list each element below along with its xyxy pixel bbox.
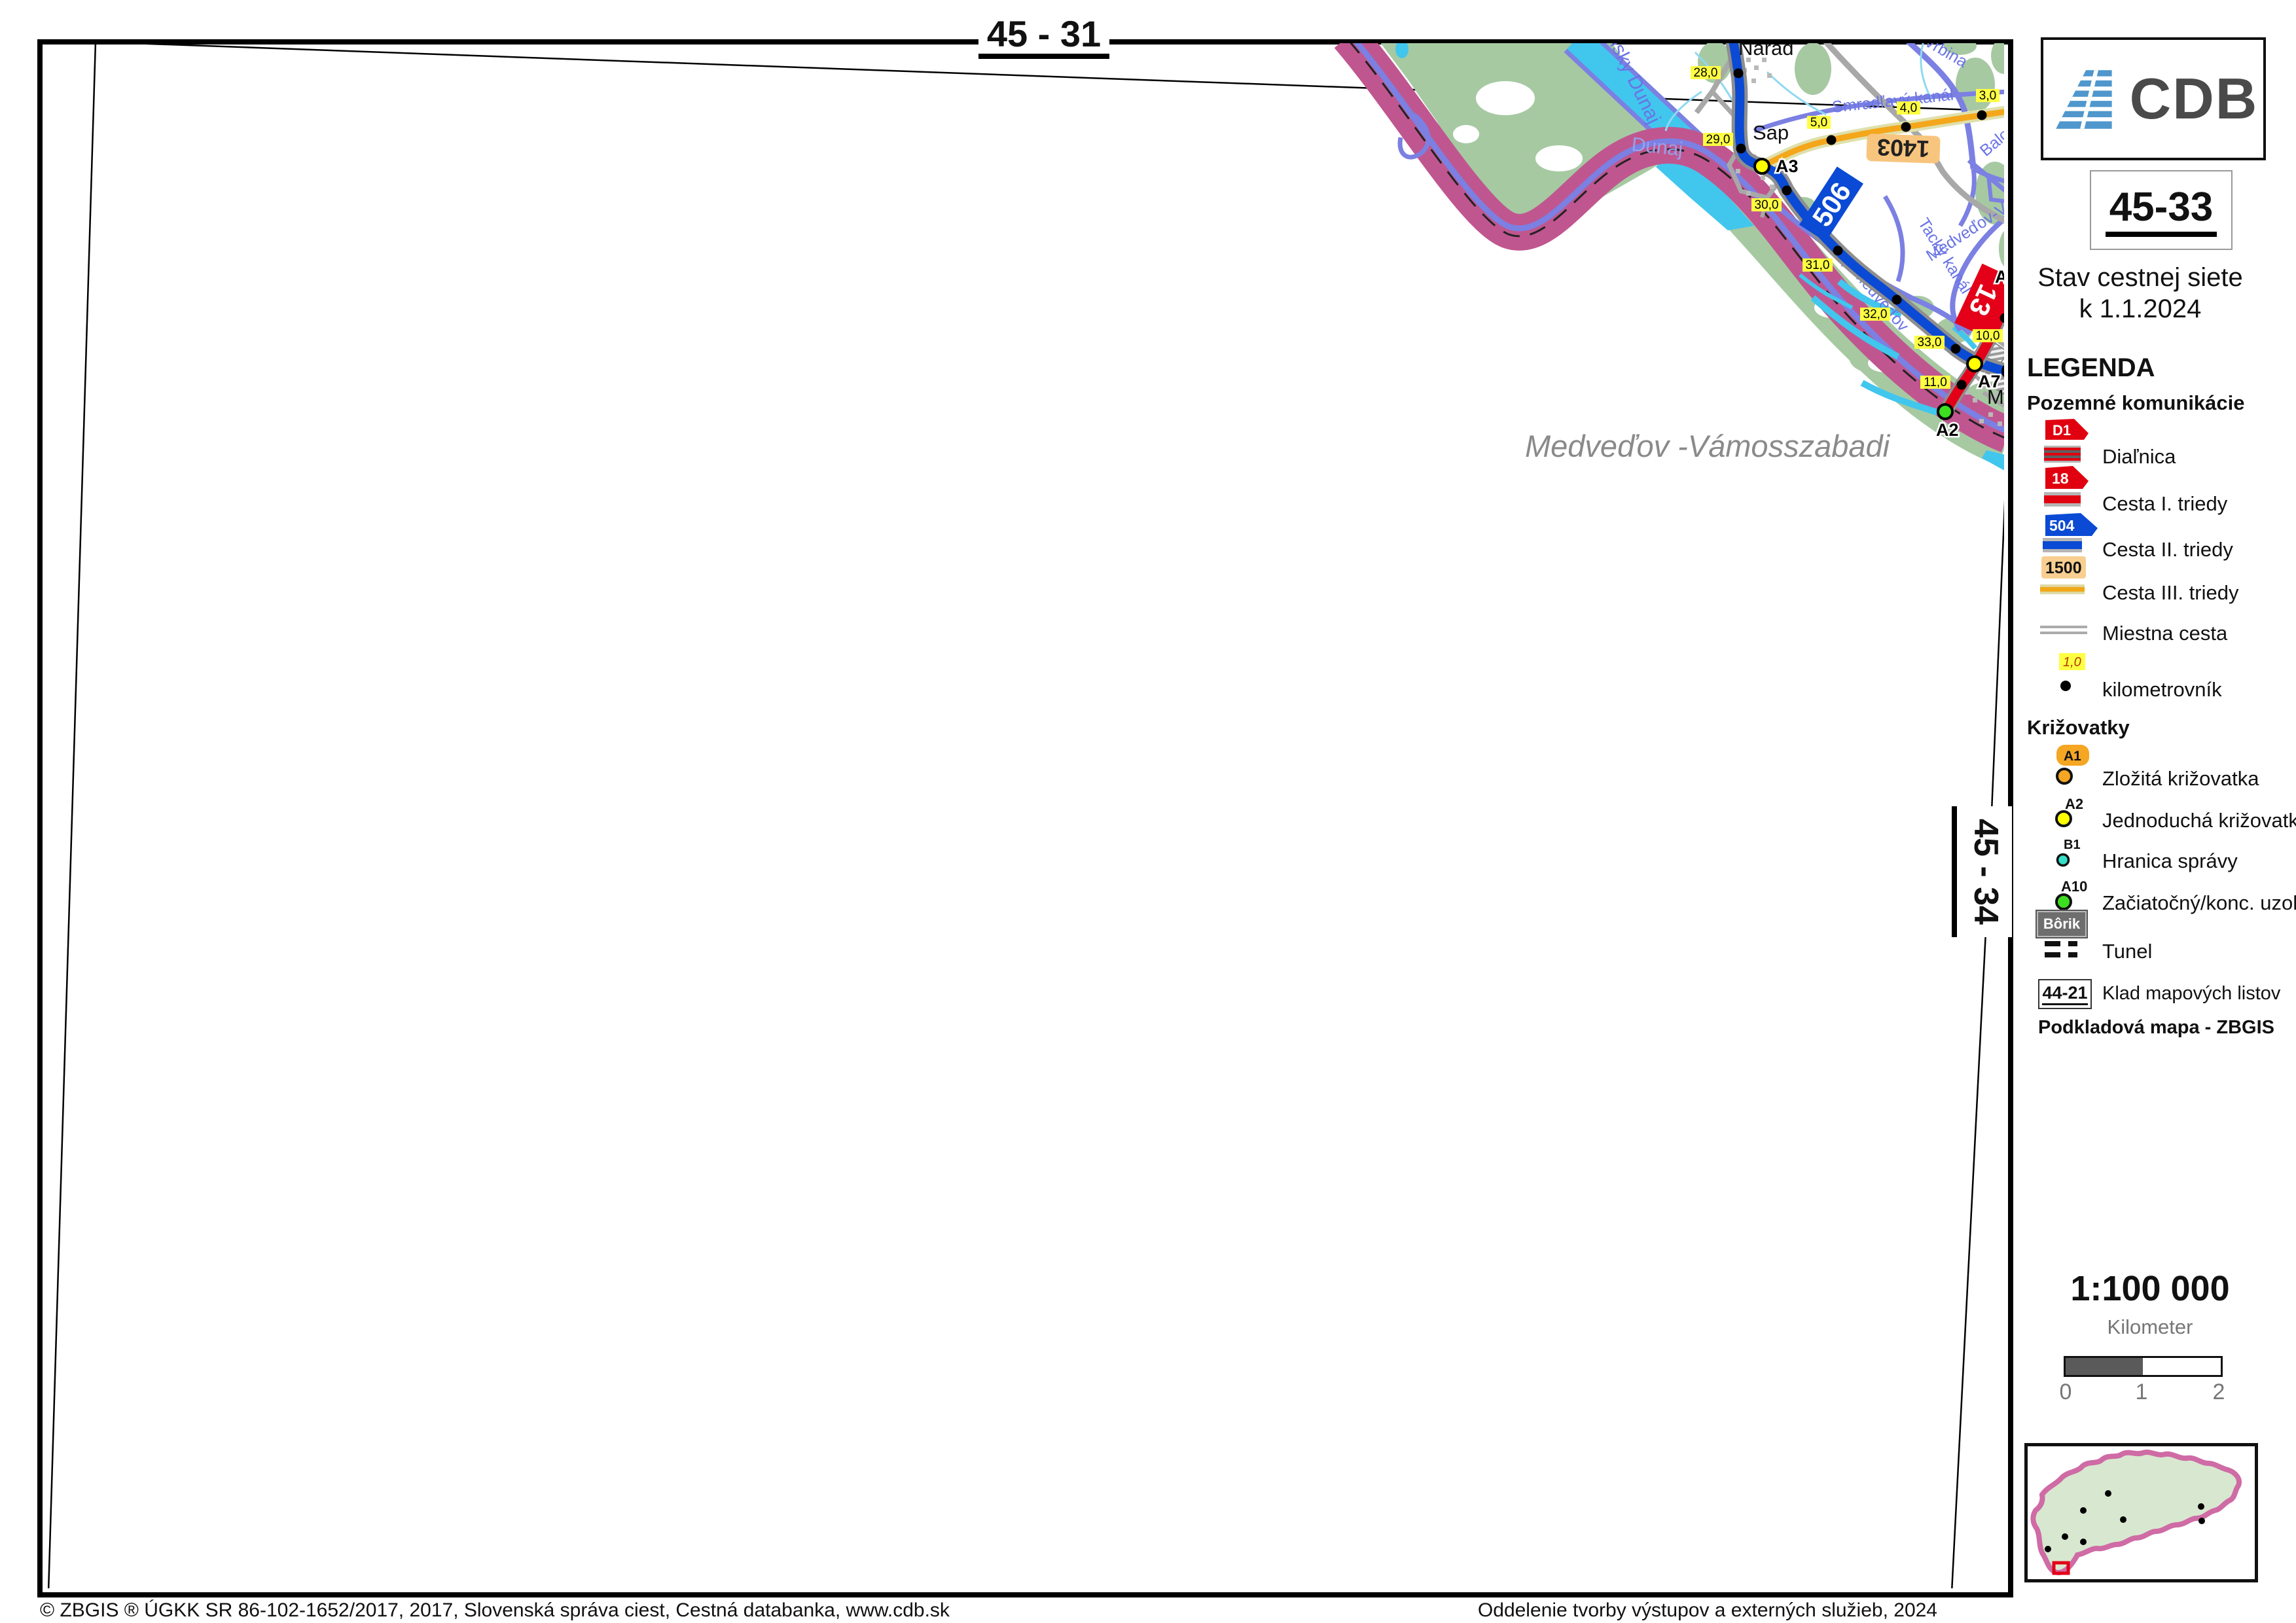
- legend-label-cesta1: Cesta I. triedy: [2102, 492, 2227, 516]
- legend-symbol-class2: [2043, 537, 2083, 554]
- junction-label: A: [1995, 267, 2008, 287]
- km-label: 32,0: [1863, 308, 1888, 321]
- legend-symbol-class1: [2044, 491, 2082, 508]
- legend-badge-b1: B1: [2064, 838, 2081, 853]
- water-label: Vrbina: [1921, 32, 1971, 71]
- corridor-label: Medveďov -Vámosszabadi: [1525, 429, 1891, 463]
- legend-symbol-class3: [2040, 584, 2086, 597]
- km-label: 4,0: [1900, 101, 1917, 115]
- cdb-logo-text: CDB: [2130, 65, 2259, 132]
- legend-label-a1: Zložitá križovatka: [2102, 767, 2259, 791]
- sheet-number-box: 45-33: [2090, 170, 2233, 250]
- legend-label-km: kilometrovník: [2102, 678, 2222, 702]
- svg-text:18: 18: [2052, 470, 2069, 487]
- junction-edge: [2003, 364, 2017, 378]
- junction-label: A3: [1776, 156, 1799, 176]
- scale-tick-2: 2: [2206, 1380, 2232, 1405]
- legend-symbol-tunnel: [2045, 941, 2085, 959]
- slovakia-outline: [2028, 1446, 2255, 1579]
- svg-text:1500: 1500: [2045, 559, 2082, 577]
- map-subtitle: Stav cestnej siete k 1.1.2024: [2029, 262, 2251, 325]
- km-label: 29,0: [1706, 133, 1731, 147]
- legend-base-note: Podkladová mapa - ZBGIS: [2038, 1017, 2274, 1039]
- footer-copyright: © ZBGIS ® ÚGKK SR 86-102-1652/2017, 2017…: [40, 1599, 950, 1622]
- sheet-number: 45-33: [2106, 184, 2217, 237]
- subtitle-line2: k 1.1.2024: [2029, 293, 2251, 325]
- scale-tick-1: 1: [2128, 1380, 2155, 1405]
- legend-label-a2: Jednoduchá križovatka: [2102, 809, 2296, 832]
- legend-shield-d1: D1: [2044, 419, 2092, 441]
- legend-roads-heading: Pozemné komunikácie: [2027, 391, 2245, 415]
- junction-A3: [1755, 159, 1769, 173]
- legend-tunnel-badge: Bôrik: [2037, 911, 2087, 937]
- svg-text:1,0: 1,0: [2063, 655, 2081, 669]
- cdb-logo-box: CDB: [2041, 37, 2266, 160]
- legend-label-b1: Hranica správy: [2102, 849, 2238, 873]
- sheet-label-right: 45 - 34: [1952, 806, 2012, 937]
- scale-tick-0: 0: [2053, 1380, 2079, 1405]
- shield-1403: 1403: [1866, 134, 1940, 164]
- legend-symbol-local-road: [2040, 626, 2090, 635]
- km-label: 3,0: [1979, 89, 1996, 103]
- legend-label-klad: Klad mapových listov: [2102, 983, 2280, 1005]
- legend-label-a10: Začiatočný/konc. uzol: [2102, 891, 2296, 915]
- locator-minimap: [2024, 1443, 2258, 1582]
- legend-junctions-heading: Križovatky: [2027, 716, 2130, 740]
- legend-shield-504: 504: [2044, 513, 2100, 538]
- svg-text:1403: 1403: [1876, 134, 1929, 163]
- km-label: 5,0: [1810, 116, 1827, 130]
- svg-text:A1: A1: [2064, 749, 2081, 764]
- legend-label-cesta3: Cesta III. triedy: [2102, 581, 2238, 605]
- sheet-label-top: 45 - 31: [978, 16, 1109, 59]
- km-label: 11,0: [1924, 376, 1947, 389]
- legend-label-dialnica: Diaľnica: [2102, 445, 2176, 469]
- legend-shield-18: 18: [2044, 466, 2092, 491]
- legend-symbol-a2: [2054, 810, 2075, 831]
- svg-text:504: 504: [2049, 517, 2075, 534]
- legend-symbol-b1: [2055, 852, 2073, 870]
- legend-klad-badge: 44-21: [2038, 979, 2092, 1009]
- km-label: 31,0: [1806, 259, 1830, 272]
- scale-bar-fill: [2066, 1358, 2143, 1375]
- scale-bar: [2064, 1356, 2223, 1377]
- legend-label-tunnel: Tunel: [2102, 940, 2152, 963]
- legend-symbol-motorway: [2044, 444, 2082, 466]
- junction-label: A2: [1936, 420, 1959, 440]
- km-label: 30,0: [1755, 198, 1779, 212]
- legend-symbol-km: 1,0: [2059, 653, 2098, 696]
- town-label: Me: [1987, 385, 2015, 408]
- legend-label-miestna: Miestna cesta: [2102, 622, 2227, 645]
- scale-ratio: 1:100 000: [2062, 1268, 2238, 1309]
- km-label: 28,0: [1694, 66, 1718, 80]
- scale-unit: Kilometer: [2062, 1315, 2238, 1339]
- junction-A7: [1967, 357, 1982, 371]
- subtitle-line1: Stav cestnej siete: [2029, 262, 2251, 293]
- footer-department: Oddelenie tvorby výstupov a externých sl…: [1374, 1599, 1937, 1622]
- legend-label-cesta2: Cesta II. triedy: [2102, 538, 2233, 562]
- legend-symbol-a1: A1: [2055, 743, 2092, 785]
- town-label: Sap: [1753, 121, 1789, 144]
- legend-klad-number: 44-21: [2042, 983, 2087, 1005]
- km-label: 10,0: [1976, 329, 2000, 343]
- sheet-boundary-lines: [48, 42, 2008, 1592]
- junction-A2: [1938, 404, 1952, 419]
- cdb-logo-icon: [2049, 67, 2121, 130]
- svg-text:D1: D1: [2053, 422, 2071, 438]
- legend-title: LEGENDA: [2027, 353, 2155, 383]
- town-label: Nárad: [1738, 37, 1793, 60]
- km-label: 33,0: [1918, 336, 1942, 349]
- legend-shield-1500: 1500: [2041, 556, 2087, 581]
